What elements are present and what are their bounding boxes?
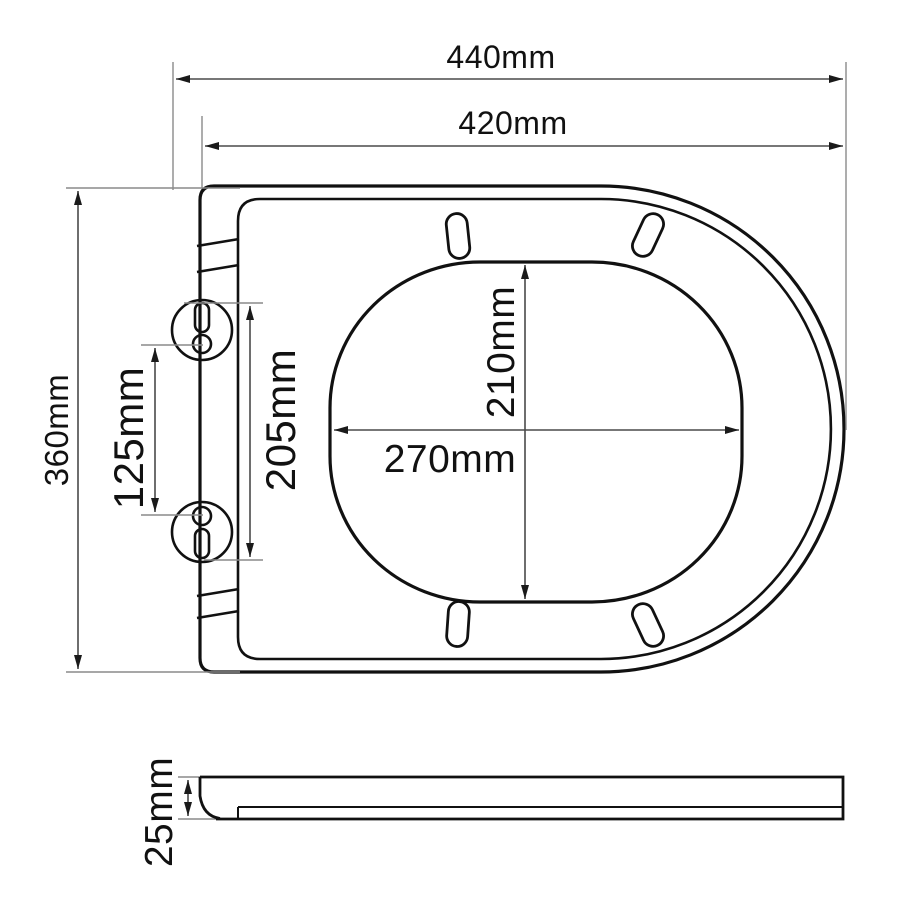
bumper-slot-top-right xyxy=(629,210,667,260)
bumper-slot-shape xyxy=(629,210,667,260)
dimension-label-205mm: 205mm xyxy=(257,349,304,492)
side-view: 25mm xyxy=(138,757,843,867)
dimension-label-440mm: 440mm xyxy=(446,39,555,75)
bumper-slot-bottom-left xyxy=(446,601,470,647)
hinge-top-circle xyxy=(172,300,232,360)
dimension-opening-width: 270mm xyxy=(334,430,739,481)
dimension-label-125mm: 125mm xyxy=(105,367,152,510)
bumper-slot-top-left xyxy=(445,213,471,260)
dimension-seat-body-width: 420mm xyxy=(202,105,843,188)
bumper-slot-shape xyxy=(445,213,471,260)
dimension-seat-thickness: 25mm xyxy=(138,757,188,867)
hinge-cover-bottom-lines xyxy=(197,589,239,618)
toilet-seat-dimension-drawing: 440mm 420mm 360mm 125mm 205mm xyxy=(0,0,900,900)
seat-opening xyxy=(330,262,742,602)
dimension-annotations: 440mm 420mm 360mm 125mm 205mm xyxy=(38,39,846,672)
hinge-bottom-slot xyxy=(195,529,209,558)
bumper-slot-shape xyxy=(446,601,470,647)
dimension-label-420mm: 420mm xyxy=(458,105,567,141)
hinge-top xyxy=(172,300,232,360)
hinge-bottom-hole xyxy=(193,507,211,525)
bumper-slot-bottom-right xyxy=(629,600,667,650)
dimension-label-270mm: 270mm xyxy=(384,438,517,481)
seat-profile-outline xyxy=(200,777,843,819)
technical-drawing-page: 440mm 420mm 360mm 125mm 205mm xyxy=(0,0,900,900)
dimension-opening-depth: 210mm xyxy=(480,265,525,599)
hinge-top-slot xyxy=(195,303,209,332)
dimension-label-25mm: 25mm xyxy=(138,757,181,867)
hinge-bottom-circle xyxy=(172,502,232,562)
dimension-hinge-hole-spacing: 125mm xyxy=(105,345,203,515)
dimension-hinge-span: 205mm xyxy=(184,303,304,560)
dimension-label-360mm: 360mm xyxy=(38,374,75,487)
extension-line xyxy=(178,777,216,819)
hinge-top-hole xyxy=(193,335,211,353)
seat-profile-inner-line xyxy=(238,807,843,819)
hinge-cover-top-lines xyxy=(197,239,239,272)
hinge-bottom xyxy=(172,502,232,562)
dimension-label-210mm: 210mm xyxy=(480,286,523,419)
bumper-slot-shape xyxy=(629,600,667,650)
